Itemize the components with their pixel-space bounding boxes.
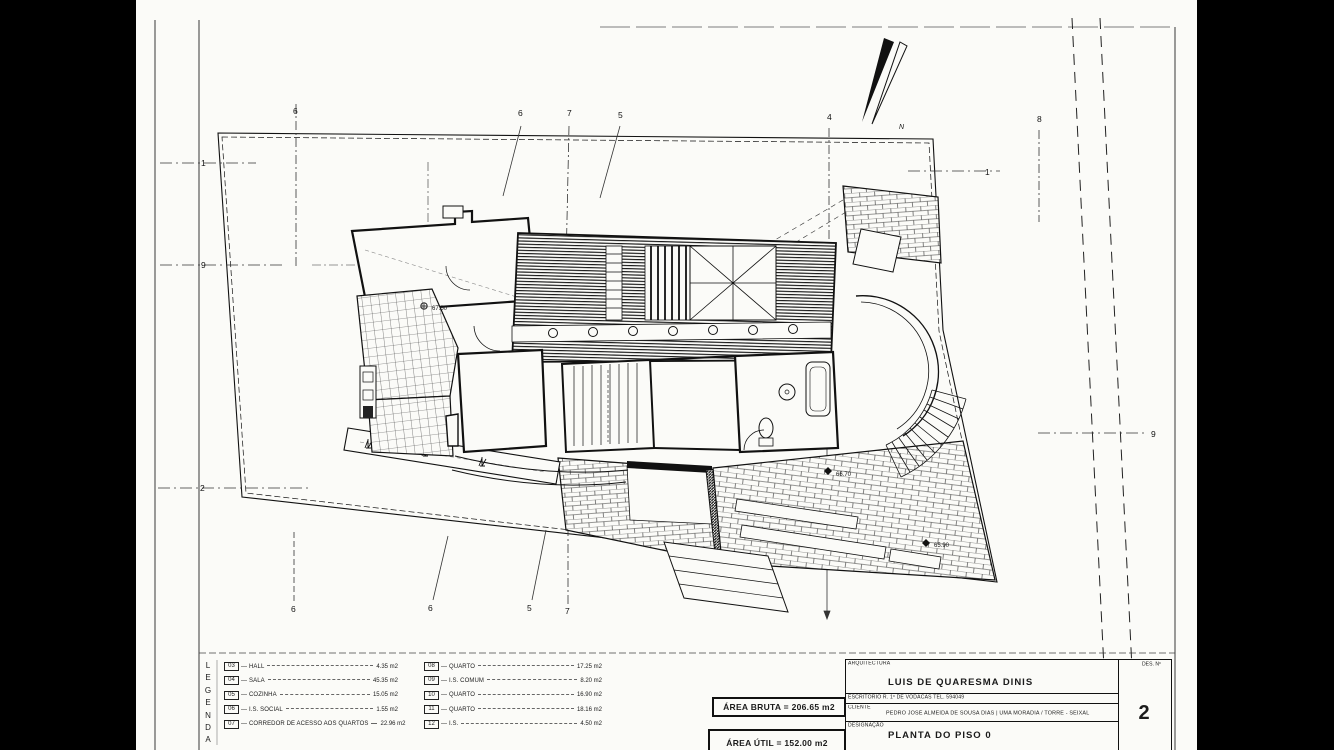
legend-code: 10 bbox=[424, 691, 439, 700]
legend-leader bbox=[461, 723, 577, 724]
legend-value: 4.50 m2 bbox=[580, 721, 602, 727]
legend-value: 1.55 m2 bbox=[376, 707, 398, 713]
spot-elevation-label: 66.70 bbox=[836, 472, 852, 478]
legend-label: HALL bbox=[249, 664, 264, 670]
legend-code: 07 bbox=[224, 720, 239, 729]
legend-label: QUARTO bbox=[449, 707, 475, 713]
grid-marker: 5 bbox=[618, 110, 623, 120]
architect-name: LUIS DE QUARESMA DINIS bbox=[888, 677, 1033, 688]
grid-marker: 1 bbox=[985, 167, 990, 177]
legend-row: 09—I.S. COMUM8.20 m2 bbox=[424, 676, 602, 685]
legend-code: 12 bbox=[424, 720, 439, 729]
legend-row: 08—QUARTO17.25 m2 bbox=[424, 662, 602, 671]
legend-label: SALA bbox=[249, 678, 265, 684]
designation-text: PLANTA DO PISO 0 bbox=[888, 730, 992, 741]
sheet-number-label: DES. Nº bbox=[1142, 662, 1161, 667]
title-block-main: ARQUITECTURA LUIS DE QUARESMA DINIS ESCR… bbox=[846, 660, 1119, 750]
legend-code: 09 bbox=[424, 676, 439, 685]
grid-marker: 4 bbox=[827, 112, 832, 122]
area-util-box: ÁREA ÚTIL = 152.00 m2 bbox=[708, 729, 846, 750]
legend-label: QUARTO bbox=[449, 692, 475, 698]
legend-right-column: 08—QUARTO17.25 m209—I.S. COMUM8.20 m210—… bbox=[424, 662, 602, 734]
designation-label: DESIGNAÇÃO bbox=[848, 723, 884, 728]
area-util-text: ÁREA ÚTIL = 152.00 m2 bbox=[726, 738, 828, 748]
grid-marker: 1 bbox=[201, 158, 206, 168]
legend-code: 04 bbox=[224, 676, 239, 685]
grid-marker: 8 bbox=[1037, 114, 1042, 124]
grid-marker: 6 bbox=[428, 603, 433, 613]
legend-letter: G bbox=[201, 685, 215, 697]
grid-marker: 7 bbox=[567, 108, 572, 118]
legend-value: 45.35 m2 bbox=[373, 678, 398, 684]
floor-plan-drawing: 667548192196657 67.5066.7065.90 N bbox=[0, 0, 1334, 750]
sheet-frame bbox=[155, 20, 1175, 750]
legend-leader bbox=[478, 708, 574, 709]
legend-leader bbox=[280, 694, 370, 695]
discipline-label: ARQUITECTURA bbox=[848, 661, 890, 666]
legend-row: 03—HALL4.35 m2 bbox=[224, 662, 398, 671]
legend-value: 16.90 m2 bbox=[577, 692, 602, 698]
client-line: PEDRO JOSÉ ALMEIDA DE SOUSA DIAS | UMA M… bbox=[886, 711, 1089, 716]
legend-letter: D bbox=[201, 722, 215, 734]
legend-letter: E bbox=[201, 697, 215, 709]
sheet-number-cell: DES. Nº 2 bbox=[1118, 660, 1170, 750]
legend-label: CORREDOR DE ACESSO AOS QUARTOS bbox=[249, 721, 368, 727]
legend-value: 4.35 m2 bbox=[376, 664, 398, 670]
legend-row: 06—I.S. SOCIAL1.55 m2 bbox=[224, 705, 398, 714]
legend-value: 8.20 m2 bbox=[580, 678, 602, 684]
bathtub bbox=[806, 362, 830, 416]
toilet bbox=[759, 418, 773, 438]
title-block: ARQUITECTURA LUIS DE QUARESMA DINIS ESCR… bbox=[845, 659, 1172, 750]
legend-left-column: 03—HALL4.35 m204—SALA45.35 m205—COZINHA1… bbox=[224, 662, 398, 734]
legend-row: 12—I.S.4.50 m2 bbox=[424, 720, 602, 729]
legend-label: I.S. SOCIAL bbox=[249, 707, 283, 713]
sink bbox=[779, 384, 795, 400]
grid-marker: 7 bbox=[565, 606, 570, 616]
legend-code: 05 bbox=[224, 691, 239, 700]
legend-leader bbox=[371, 723, 377, 724]
legend-row: 04—SALA45.35 m2 bbox=[224, 676, 398, 685]
legend-value: 22.96 m2 bbox=[380, 721, 405, 727]
legend-vertical-title: LEGENDA bbox=[201, 660, 215, 747]
legend-code: 08 bbox=[424, 662, 439, 671]
north-label: N bbox=[899, 124, 905, 131]
legend-letter: L bbox=[201, 660, 215, 672]
area-bruta-box: ÁREA BRUTA = 206.65 m2 bbox=[712, 697, 846, 717]
legend-row: 07—CORREDOR DE ACESSO AOS QUARTOS22.96 m… bbox=[224, 720, 398, 729]
road-edge-lines bbox=[1072, 18, 1136, 750]
grid-marker: 2 bbox=[200, 483, 205, 493]
legend-letter: A bbox=[201, 734, 215, 746]
office-line: ESCRITORIO R. 1º DE VODACAS TEL. 594049 bbox=[848, 695, 964, 700]
legend-label: COZINHA bbox=[249, 692, 277, 698]
spot-elevation-label: 65.90 bbox=[934, 543, 950, 549]
legend-label: QUARTO bbox=[449, 664, 475, 670]
legend-code: 06 bbox=[224, 705, 239, 714]
grid-marker: 5 bbox=[527, 603, 532, 613]
legend-row: 11—QUARTO18.16 m2 bbox=[424, 705, 602, 714]
client-label: CLIENTE bbox=[848, 705, 871, 710]
legend-leader bbox=[478, 665, 574, 666]
legend-label: I.S. bbox=[449, 721, 458, 727]
legend-value: 15.05 m2 bbox=[373, 692, 398, 698]
sheet-number: 2 bbox=[1118, 702, 1170, 725]
room-hall bbox=[458, 350, 546, 452]
legend-code: 11 bbox=[424, 705, 439, 714]
legend-letter: E bbox=[201, 672, 215, 684]
legend-leader bbox=[487, 679, 577, 680]
legend-label: I.S. COMUM bbox=[449, 678, 484, 684]
legend-code: 03 bbox=[224, 662, 239, 671]
legend-leader bbox=[286, 708, 374, 709]
legend-row: 05—COZINHA15.05 m2 bbox=[224, 691, 398, 700]
legend-leader bbox=[267, 665, 373, 666]
spot-elevation-label: 67.50 bbox=[432, 306, 448, 312]
legend-leader bbox=[478, 694, 574, 695]
scanned-floor-plan-sheet: 667548192196657 67.5066.7065.90 N LEGEND… bbox=[0, 0, 1334, 750]
grid-marker: 6 bbox=[291, 604, 296, 614]
legend-leader bbox=[268, 679, 370, 680]
legend-value: 18.16 m2 bbox=[577, 707, 602, 713]
grid-marker: 9 bbox=[1151, 429, 1156, 439]
north-arrow-icon bbox=[862, 38, 907, 124]
area-bruta-text: ÁREA BRUTA = 206.65 m2 bbox=[723, 702, 835, 712]
curved-wall bbox=[856, 296, 938, 436]
grid-marker: 9 bbox=[201, 260, 206, 270]
legend-value: 17.25 m2 bbox=[577, 664, 602, 670]
grid-marker: 6 bbox=[293, 106, 298, 116]
legend-letter: N bbox=[201, 710, 215, 722]
legend-row: 10—QUARTO16.90 m2 bbox=[424, 691, 602, 700]
grid-marker: 6 bbox=[518, 108, 523, 118]
